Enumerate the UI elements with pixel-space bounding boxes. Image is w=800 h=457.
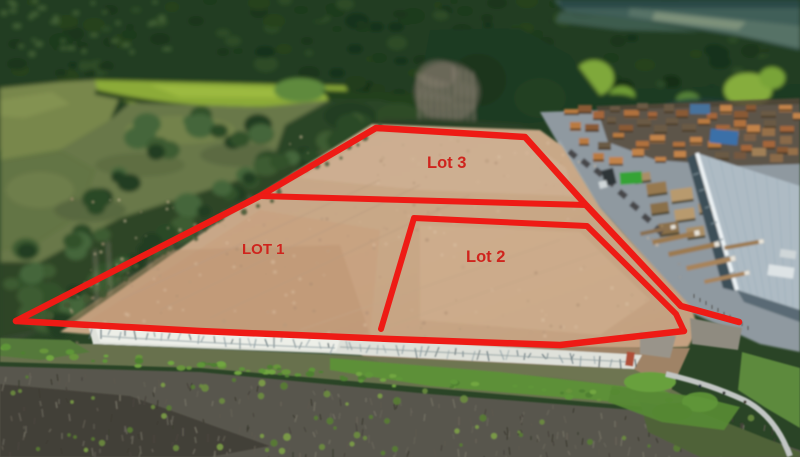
svg-text:Lot 3: Lot 3 xyxy=(427,154,466,172)
svg-text:LOT 1: LOT 1 xyxy=(242,241,285,258)
svg-text:Lot 2: Lot 2 xyxy=(466,248,505,266)
